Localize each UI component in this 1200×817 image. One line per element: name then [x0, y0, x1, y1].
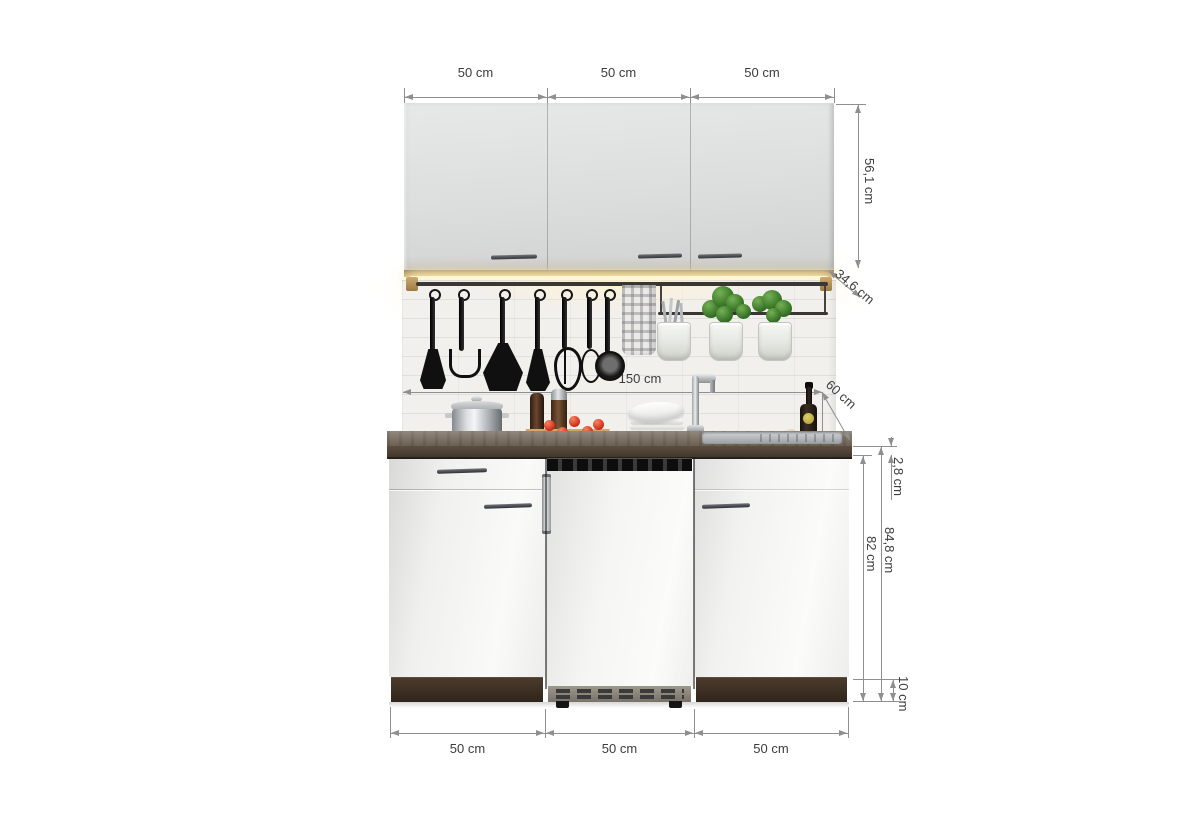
refrigerator-door	[546, 471, 693, 686]
arrow	[855, 105, 861, 113]
arrow	[681, 94, 689, 100]
pot-handle-right	[501, 413, 509, 418]
refrigerator-kick-vents	[556, 695, 684, 699]
front-gap-highlight	[694, 490, 849, 491]
arrow	[691, 94, 699, 100]
dim-label-wall-height: 56,1 cm	[861, 158, 877, 204]
dim-label-top-1: 50 cm	[404, 65, 547, 81]
dim-label-top-2: 50 cm	[547, 65, 690, 81]
dim-label-plinth: 10 cm	[895, 676, 911, 711]
dim-label-total-height: 84,8 cm	[881, 527, 897, 573]
dim-label-bottom-1: 50 cm	[390, 741, 545, 757]
arrow	[695, 730, 703, 736]
dim-label-unit-height: 82 cm	[863, 536, 879, 571]
kitchenette-dimension-diagram: 150 cm	[0, 0, 1200, 817]
unit-gap	[693, 459, 695, 689]
drawer-gap-highlight	[389, 490, 545, 491]
dim-label-top-3: 50 cm	[690, 65, 834, 81]
kitchen-towel	[622, 285, 656, 355]
dim-line-bottom	[390, 733, 848, 734]
dim-ext	[853, 701, 899, 702]
potato-masher-handle	[459, 297, 464, 351]
whisk-handle	[562, 297, 567, 349]
herb-bucket-1	[709, 322, 743, 361]
arrow	[548, 94, 556, 100]
dim-line-total-height	[881, 446, 882, 701]
tomato	[569, 416, 580, 427]
faucet-column	[692, 376, 699, 430]
arrow	[860, 456, 866, 464]
arrow	[855, 260, 861, 268]
base-unit-door	[694, 459, 849, 677]
skimmer-handle	[605, 297, 610, 353]
dim-line-unit-height	[863, 455, 864, 701]
plinth-left	[391, 677, 543, 702]
dim-label-bottom-3: 50 cm	[694, 741, 848, 757]
base-unit-drawer-door	[389, 459, 545, 677]
herb-foliage	[716, 306, 733, 323]
arrow	[825, 94, 833, 100]
wine-bottle-label	[803, 413, 814, 424]
potato-masher-head	[449, 349, 481, 378]
plate	[630, 424, 684, 429]
wall-door-gap	[690, 103, 691, 270]
dim-label-worktop-thickness: 2,8 cm	[890, 457, 906, 496]
cutlery-bucket	[657, 322, 691, 361]
dim-ext	[853, 446, 897, 447]
floor-shadow	[389, 702, 849, 708]
arrow	[860, 693, 866, 701]
skimmer-head	[595, 351, 625, 381]
small-whisk-handle	[587, 297, 592, 349]
dim-ext	[834, 88, 835, 103]
dim-line-wall-height	[858, 104, 859, 268]
slotted-spatula-handle	[430, 297, 435, 351]
tomato	[593, 419, 604, 430]
arrow	[685, 730, 693, 736]
dim-line-150	[403, 392, 822, 393]
herb-foliage	[736, 304, 751, 319]
arrow	[878, 447, 884, 455]
dim-ext	[836, 104, 866, 105]
arrow	[546, 730, 554, 736]
refrigerator-vent-top	[547, 458, 692, 471]
arrow	[538, 94, 546, 100]
arrow	[888, 438, 894, 446]
dim-label-bottom-2: 50 cm	[545, 741, 694, 757]
arrow	[405, 94, 413, 100]
unit-gap	[545, 459, 547, 689]
plinth-right	[696, 677, 847, 702]
turner-handle	[535, 297, 540, 351]
faucet-spout-down	[710, 380, 715, 393]
herb-foliage	[766, 308, 781, 323]
herb-rail-support-right	[824, 286, 826, 313]
whisk-wire	[564, 348, 566, 384]
wide-spatula-handle	[500, 297, 505, 345]
sink-drainer	[760, 434, 836, 442]
wall-cabinet-row	[404, 103, 834, 270]
arrow	[536, 730, 544, 736]
wall-door-gap	[547, 103, 548, 270]
dim-ext	[848, 707, 849, 738]
dim-line-top	[404, 97, 834, 98]
arrow	[839, 730, 847, 736]
arrow	[878, 693, 884, 701]
tomato	[544, 420, 555, 431]
dim-label-wall-depth: 34,6 cm	[832, 266, 878, 308]
refrigerator-kick-vents	[556, 689, 684, 693]
herb-bucket-2	[758, 322, 792, 361]
arrow	[391, 730, 399, 736]
arrow	[403, 389, 411, 395]
